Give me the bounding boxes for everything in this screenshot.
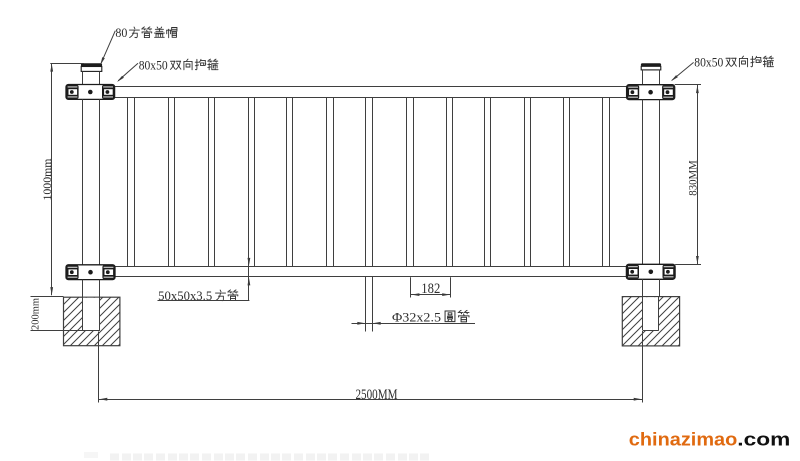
svg-text:80: 80 bbox=[115, 26, 127, 40]
svg-text:200mm: 200mm bbox=[30, 298, 41, 330]
svg-text:182: 182 bbox=[421, 281, 440, 297]
svg-text:2500MM: 2500MM bbox=[356, 387, 398, 403]
svg-text:chinazimao: chinazimao bbox=[629, 428, 738, 449]
svg-text:830MM: 830MM bbox=[688, 160, 700, 196]
svg-text:.com: .com bbox=[737, 428, 790, 449]
svg-text:80x50: 80x50 bbox=[139, 58, 168, 72]
svg-text:Φ32x2.5: Φ32x2.5 bbox=[392, 310, 441, 324]
svg-text:1000mm: 1000mm bbox=[42, 158, 54, 200]
svg-text:80x50: 80x50 bbox=[694, 55, 723, 69]
